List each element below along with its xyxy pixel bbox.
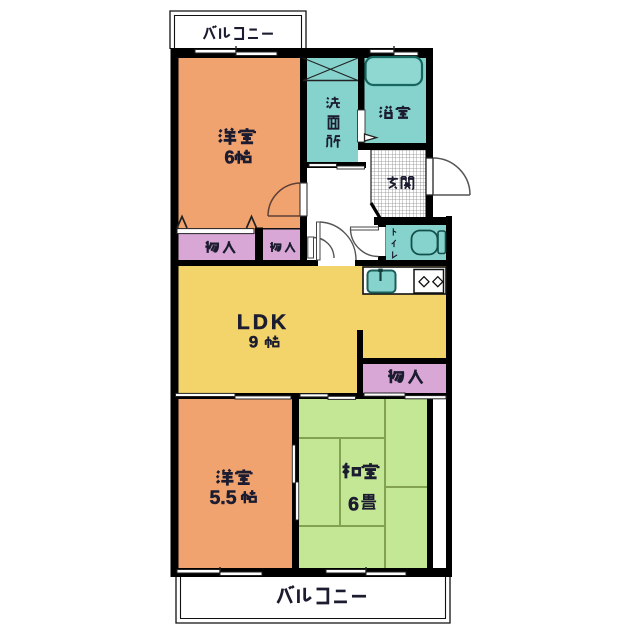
svg-text:LDK: LDK [237, 311, 289, 334]
svg-text:5.5: 5.5 [209, 487, 236, 509]
svg-text:9: 9 [249, 333, 258, 352]
svg-text:6: 6 [348, 494, 359, 516]
svg-text:6: 6 [224, 148, 234, 168]
